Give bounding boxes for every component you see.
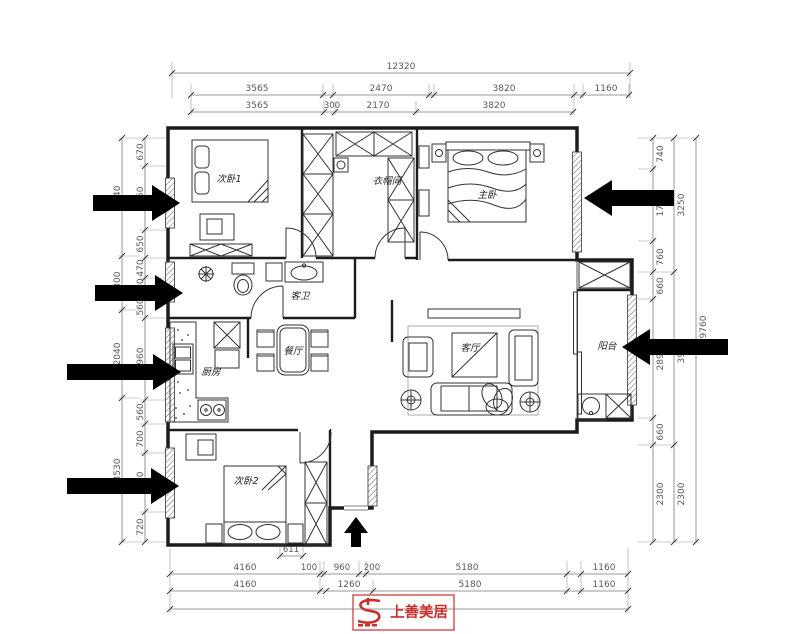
door-master [420,232,448,260]
door-entry [300,432,331,463]
dim-right-inner-6: 2300 [656,482,666,505]
arrow-left-3-icon [67,354,181,390]
dim-top-r3-3: 3820 [483,101,506,111]
entrance-opening [344,504,368,512]
room-label-cloakroom: 衣帽间 [373,175,403,187]
room-label-bedroom1: 次卧1 [216,174,241,185]
dim-top-r2-0: 3565 [246,84,269,94]
dim-bot-r1-3: 200 [364,563,380,573]
dim-top-r2-3: 1160 [595,84,618,94]
bedroom1-furniture [190,140,268,256]
dim-bot-r2-1: 1260 [338,580,361,590]
dim-left-inner-3: 470 [136,259,146,276]
dim-left-inner-8: 700 [136,430,146,447]
dim-right-total: 9760 [699,315,709,338]
living-furniture [401,309,540,415]
dim-right-inner-0: 740 [656,145,666,162]
dim-right-middle-2: 2300 [677,482,687,505]
dim-bot-r2-2: 5180 [459,580,482,590]
dim-bot-r1-2: 960 [334,563,350,573]
dim-bot-r2-3: 1160 [593,580,616,590]
room-label-master-bedroom: 主卧 [477,190,497,201]
master-furniture [419,142,544,222]
dim-right-inner-2: 760 [656,248,666,265]
dim-bot-r1-5: 1160 [593,563,616,573]
logo-mark-icon [358,598,380,623]
dim-left-outer-2: 2040 [113,342,123,365]
logo-text: 上善美居 [390,603,448,621]
dim-top-r2-2: 3820 [493,84,516,94]
dim-right-inner-5: 660 [656,423,666,440]
room-label-living: 客厅 [460,342,481,354]
dim-top-r2-1: 2470 [370,84,393,94]
dim-left-inner-7: 560 [136,403,146,420]
floor-plan-svg: 12320 3565 2470 3820 1160 3565 300 2170 … [0,0,800,634]
dim-left-inner-10: 720 [136,518,146,535]
dim-bot-r1-4: 5180 [456,563,479,573]
window-entry [368,466,377,506]
room-label-guest-bath: 客卫 [290,290,311,302]
room-label-dining: 餐厅 [283,346,304,357]
cloakroom-wardrobes [303,132,414,256]
door-cloakroom [375,228,405,258]
room-label-kitchen: 厨房 [201,367,222,378]
dim-right-inner-3: 660 [656,277,666,294]
dim-top-total: 12320 [387,62,416,72]
door-bathroom [251,286,283,318]
arrow-right-2-icon [622,329,728,365]
dim-bot-r1-0: 4160 [234,563,257,573]
dim-line-top [172,73,630,112]
window-master [573,152,582,252]
room-label-bedroom2: 次卧2 [233,476,258,487]
dim-bot-r1-1: 100 [301,563,317,573]
dim-top-r3-0: 3565 [246,101,269,111]
dim-left-outer-3: 3530 [113,458,123,481]
entrance-arrow-icon [344,517,368,547]
dim-left-inner-0: 670 [136,143,146,160]
dim-top-r3-2: 2170 [367,101,390,111]
arrow-left-4-icon [67,468,179,504]
dim-bot-r2-0: 4160 [234,580,257,590]
logo-small-marks [358,624,377,627]
dim-top-r3-1: 300 [324,101,340,111]
bedroom2-furniture [186,434,327,545]
logo: 上善美居 [353,595,454,630]
dim-left-inner-2: 650 [136,235,146,252]
dim-right-middle-0: 3250 [677,193,687,216]
floor-plan-page: 12320 3565 2470 3820 1160 3565 300 2170 … [0,0,800,634]
room-label-balcony: 阳台 [597,340,617,352]
windows [166,152,637,518]
